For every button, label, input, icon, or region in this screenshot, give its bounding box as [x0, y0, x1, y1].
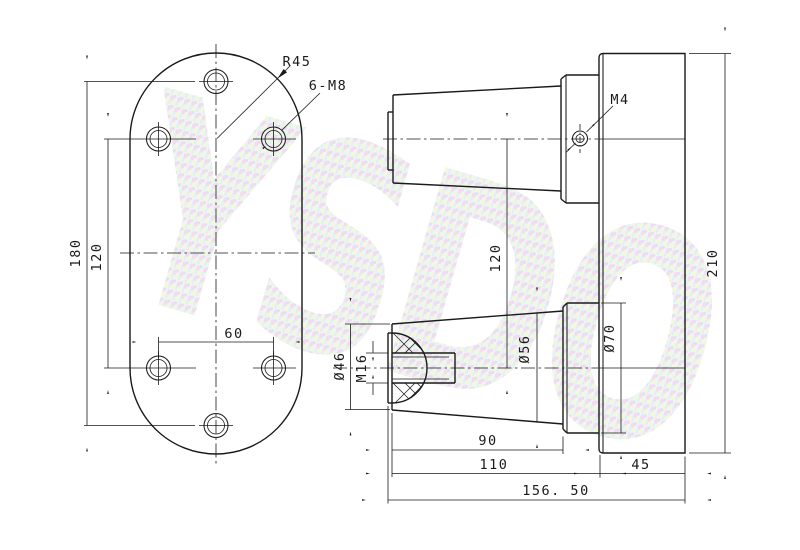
- callout-radius-r45: R45: [217, 54, 311, 139]
- dim-label-d56: Ø56: [517, 335, 533, 364]
- dim-label-110: 110: [480, 457, 509, 473]
- callout-holes-6m8: 6-M8: [282, 78, 348, 131]
- dim-hole-span-vertical-120: 120: [89, 139, 108, 368]
- engineering-drawing-canvas: YSDO: [0, 0, 800, 550]
- dim-label-60: 60: [224, 326, 243, 342]
- plate-outline: [130, 53, 302, 454]
- dim-chain-lengths: 90 110 45 156. 50: [388, 406, 685, 504]
- dim-label-m16: M16: [354, 354, 370, 383]
- front-view-plate: 180 120 60 R45 6-: [68, 44, 347, 466]
- dim-label-90: 90: [478, 433, 497, 449]
- plate-edge-view: [599, 54, 685, 454]
- upper-cone-shaft: [388, 86, 561, 191]
- dim-label-120: 120: [89, 243, 105, 272]
- dim-shaft-centers-120: 120: [488, 139, 507, 368]
- drawing-linework: 180 120 60 R45 6-: [0, 0, 800, 550]
- radius-label: R45: [283, 54, 312, 70]
- dim-label-210: 210: [705, 249, 721, 278]
- dim-label-156-50: 156. 50: [522, 483, 589, 499]
- dim-plate-height-210: 210: [689, 54, 731, 454]
- dim-label-side-120: 120: [488, 244, 504, 273]
- dim-label-180: 180: [68, 239, 84, 268]
- set-screw-label: M4: [610, 92, 629, 108]
- set-screw-m4: M4: [566, 92, 630, 153]
- holes-label: 6-M8: [309, 78, 348, 94]
- dim-label-d70: Ø70: [602, 324, 618, 353]
- dim-label-45: 45: [631, 457, 650, 473]
- side-view-assembly: M4: [332, 54, 731, 504]
- lower-ball-shaft: [380, 311, 563, 424]
- dim-label-d46: Ø46: [332, 352, 348, 381]
- dim-plate-hole-span-180: 180: [68, 82, 195, 426]
